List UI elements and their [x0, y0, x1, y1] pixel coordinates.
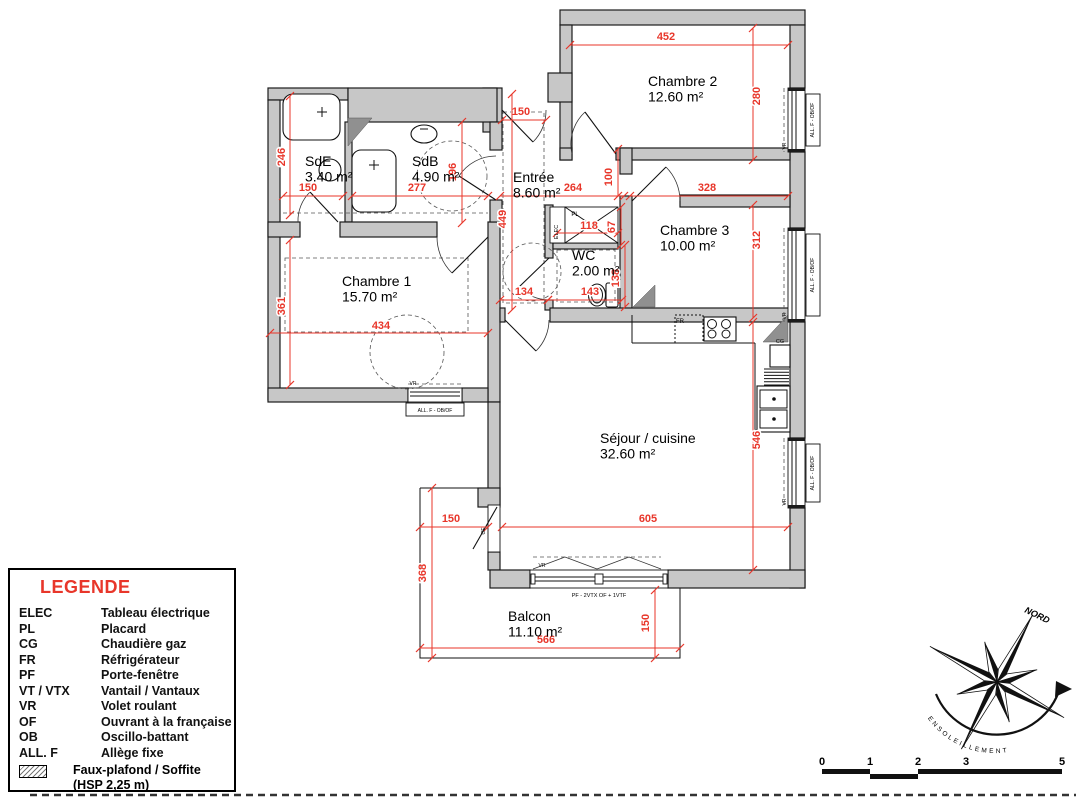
cg-tag: CG [776, 339, 784, 345]
wall-segment [478, 488, 500, 507]
wall-segment [490, 122, 502, 150]
legend-entry-faux-plafond: Faux-plafond / Soffite(HSP 2,25 m) [19, 763, 234, 792]
wall-segment [616, 148, 790, 160]
room-area-balcon: 11.10 m² [508, 624, 563, 640]
dimension-value: 452 [657, 31, 675, 43]
allege-window-tag: ALL. F - OB/OF [418, 408, 453, 414]
scale-label-2: 2 [915, 756, 921, 768]
room-area-sejour: 32.60 m² [600, 446, 656, 462]
dimension-value: 434 [372, 320, 391, 332]
wall-segment [560, 148, 572, 160]
wall-segment [560, 10, 805, 25]
legend-label: Oscillo-battant [101, 730, 189, 744]
windows [406, 88, 820, 588]
wall-segment [348, 88, 497, 122]
wall-segment [790, 322, 805, 438]
room-area-chambre-3: 10.00 m² [660, 238, 716, 254]
wall-segment [620, 148, 632, 174]
sink [411, 125, 437, 143]
legend-abbr: CG [19, 637, 101, 653]
room-name-wc: WC [572, 247, 595, 263]
dimension-value: 143 [581, 286, 599, 298]
room-name-chambre-2: Chambre 2 [648, 73, 717, 89]
allege-window-tag: ALL. F - OB/OF [810, 103, 816, 138]
wall-segment [668, 570, 805, 588]
sink-drain [772, 417, 776, 421]
room-area-chambre-2: 12.60 m² [648, 89, 704, 105]
wall-segment [680, 195, 790, 207]
room-name-sde: SdE [305, 153, 331, 169]
door-swing-arc [459, 156, 496, 176]
dimension-value: 100 [603, 168, 615, 186]
window-opening-indicator [629, 557, 661, 569]
scale-bar-segment [822, 769, 870, 774]
room-name-balcon: Balcon [508, 608, 551, 624]
compass-rose: ENSOLEILLEMENTNORD [918, 605, 1074, 755]
room-area-entree: 8.60 m² [513, 185, 561, 201]
dimension-value: 150 [442, 513, 460, 525]
fixtures [283, 94, 790, 432]
vr-tag: VR [782, 498, 788, 505]
room-area-sdb: 4.90 m² [412, 169, 460, 185]
legend-label: Allège fixe [101, 746, 164, 760]
vr-tag: VR [782, 142, 788, 149]
sink-drain [772, 397, 776, 401]
wall-segment [268, 100, 280, 400]
room-name-sejour: Séjour / cuisine [600, 430, 696, 446]
door-leaf [505, 320, 536, 351]
wall-segment [268, 388, 408, 402]
wall-segment [340, 222, 437, 237]
window-end-cap [788, 88, 805, 91]
wall-segment [500, 308, 505, 322]
soffit-zone [503, 112, 544, 303]
window-opening-indicator [597, 557, 629, 569]
wall-segment [462, 388, 488, 402]
duct-triangle [348, 118, 372, 146]
dimension-value: 150 [512, 106, 530, 118]
vr-tag: VR [410, 381, 417, 387]
sun-arc-arrowhead [1055, 681, 1072, 697]
legend-label: Volet roulant [101, 699, 176, 713]
wall-segment [488, 222, 500, 402]
legend-entry-vt-vtx: VT / VTXVantail / Vantaux [19, 684, 234, 700]
dimension-value: 312 [751, 231, 763, 249]
room-name-chambre-1: Chambre 1 [342, 273, 411, 289]
door-swing-arc [437, 237, 452, 273]
scale-bar-segment [918, 769, 1062, 774]
shower-tray [283, 94, 340, 140]
legend-abbr: OB [19, 730, 101, 746]
window-mullion [663, 574, 667, 584]
window-end-cap [788, 319, 805, 322]
legend-label: Réfrigérateur [101, 653, 180, 667]
dimension-value: 134 [515, 286, 534, 298]
legend-abbr: PF [19, 668, 101, 684]
legend-entry-of: OFOuvrant à la française [19, 715, 234, 731]
floor-plan-sheet: 4521502771502643281184341341436051505662… [0, 0, 1076, 800]
duct-triangle [633, 285, 655, 307]
dimension-value: 67 [606, 221, 618, 233]
scale-label-0: 0 [819, 756, 825, 768]
window-mullion [531, 574, 535, 584]
room-name-entree: Entrée [513, 169, 554, 185]
legend-entry-elec: ELECTableau électrique [19, 606, 234, 622]
legend-entry-all-f: ALL. FAllège fixe [19, 746, 234, 762]
scale-bar-segment [870, 774, 918, 779]
dimension-value: 605 [639, 513, 657, 525]
door-swing-arc [571, 112, 585, 154]
door-leaf [585, 112, 616, 154]
dimension-value: 264 [564, 182, 583, 194]
dimension-value: 246 [276, 148, 288, 166]
legend-label: Faux-plafond / Soffite(HSP 2,25 m) [73, 763, 201, 792]
wall-segment [548, 73, 572, 102]
wall-segment [488, 552, 500, 570]
legend-abbr: ALL. F [19, 746, 101, 762]
pf-window-tag: PF - 2VTX OF + 1VTF [572, 593, 627, 599]
wall-segment [490, 570, 530, 588]
door-leaf [452, 237, 488, 273]
sun-arc-textpath [918, 692, 1074, 753]
legend-entry-pl: PLPlacard [19, 622, 234, 638]
gas-boiler [770, 345, 790, 367]
window-end-cap [788, 505, 805, 508]
wall-segment [790, 25, 805, 88]
room-area-wc: 2.00 m² [572, 263, 620, 279]
dimension-value: 546 [751, 431, 763, 449]
vr-tag: VR [539, 563, 546, 569]
scale-label-5: 5 [1059, 756, 1065, 768]
scale-bar: 01235 [819, 756, 1065, 779]
room-name-sdb: SdB [412, 153, 438, 169]
door-leaf [519, 258, 549, 287]
wall-segment [550, 308, 790, 322]
dimension-value: 328 [698, 182, 716, 194]
legend-label: Tableau électrique [101, 606, 210, 620]
kitchen-sink [757, 386, 790, 432]
vr-tag: VR [782, 312, 788, 319]
allege-window-tag: ALL. F - OB/OF [810, 258, 816, 293]
legend-abbr: FR [19, 653, 101, 669]
legend-abbr: VT / VTX [19, 684, 101, 700]
room-area-sde: 3.40 m² [305, 169, 353, 185]
pl-tag: PL [571, 212, 579, 218]
legend-abbr: OF [19, 715, 101, 731]
dimension-value: 280 [751, 87, 763, 105]
window-frame [408, 388, 462, 402]
fr-tag: FR [676, 319, 685, 325]
legend-abbr: VR [19, 699, 101, 715]
door-swing-arc [536, 320, 549, 351]
room-name-chambre-3: Chambre 3 [660, 222, 729, 238]
legend-entry-ob: OBOscillo-battant [19, 730, 234, 746]
hatch-swatch-icon [19, 765, 47, 778]
dimension-value: 368 [417, 564, 429, 582]
legend-rows: ELECTableau électriquePLPlacardCGChaudiè… [10, 606, 234, 792]
elec-tag: ELEC [554, 225, 560, 239]
scale-label-1: 1 [867, 756, 873, 768]
dimension-value: 150 [640, 614, 652, 632]
legend-label: Ouvrant à la française [101, 715, 232, 729]
dimension-value: 449 [497, 210, 509, 228]
legend-entry-fr: FRRéfrigérateur [19, 653, 234, 669]
legend-label: Vantail / Vantaux [101, 684, 200, 698]
legend-abbr: PL [19, 622, 101, 638]
legend-abbr: ELEC [19, 606, 101, 622]
wall-segment [790, 152, 805, 228]
legend-entry-pf: PFPorte-fenêtre [19, 668, 234, 684]
window-mullion [595, 574, 603, 584]
allege-window-tag: ALL. F - OB/OF [810, 456, 816, 491]
room-area-chambre-1: 15.70 m² [342, 289, 398, 305]
window-end-cap [788, 228, 805, 231]
window-end-cap [788, 438, 805, 441]
dimension-value: 118 [580, 220, 598, 232]
legend-label: Chaudière gaz [101, 637, 186, 651]
legend-title: LEGENDE [40, 577, 234, 598]
wall-segment [268, 222, 300, 237]
of-tag: OF [481, 528, 487, 535]
legend-entry-cg: CGChaudière gaz [19, 637, 234, 653]
window-end-cap [788, 149, 805, 152]
window-opening-indicator [565, 557, 597, 569]
bathtub [352, 150, 396, 212]
dimension-value: 361 [276, 297, 288, 315]
legend-entry-vr: VRVolet roulant [19, 699, 234, 715]
legend: LEGENDE ELECTableau électriquePLPlacardC… [8, 568, 236, 792]
legend-label: Porte-fenêtre [101, 668, 179, 682]
legend-label: Placard [101, 622, 146, 636]
scale-label-3: 3 [963, 756, 969, 768]
